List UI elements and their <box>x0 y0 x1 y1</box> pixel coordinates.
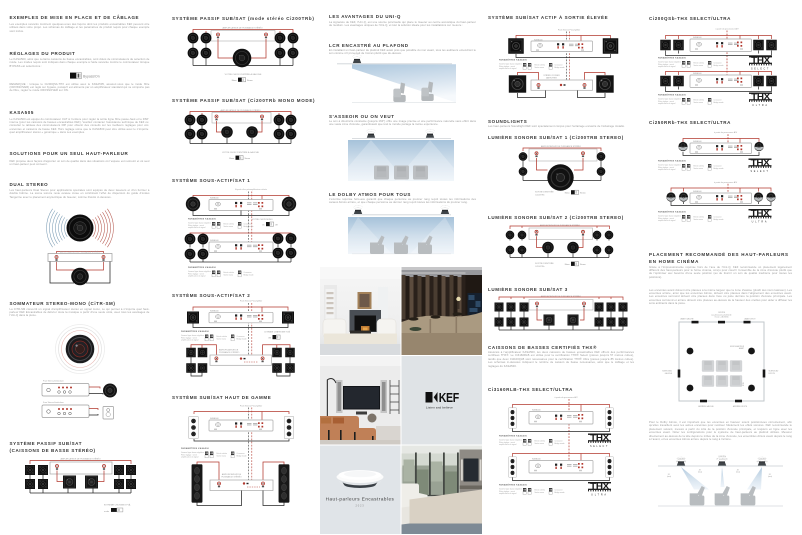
svg-text:à partir du processeur A/V: à partir du processeur A/V <box>714 131 738 134</box>
svg-text:À partir d'un préamplificateur: À partir d'un préamplificateur stéréo <box>235 188 268 191</box>
svg-text:20°: 20° <box>769 474 772 476</box>
svg-text:(max): (max) <box>736 472 741 474</box>
svg-text:Mono: Mono <box>565 264 570 266</box>
svg-text:VOTRE CHOIX D'ENTRÉE À GAUCHE: VOTRE CHOIX D'ENTRÉE À GAUCHE <box>225 73 262 76</box>
svg-text:l'écran + AU BUS): l'écran + AU BUS) <box>715 316 729 319</box>
svg-text:(max): (max) <box>698 472 703 474</box>
svg-text:KASA500: KASA500 <box>210 417 220 420</box>
svg-text:Ci200TRb: Ci200TRb <box>535 266 545 268</box>
svg-text:45°: 45° <box>737 470 740 472</box>
svg-text:ARRIÈRE GAUCHE: ARRIÈRE GAUCHE <box>698 405 714 408</box>
svg-text:ARRIÈRE DROITE: ARRIÈRE DROITE <box>733 405 748 408</box>
svg-text:Mono: Mono <box>229 158 234 160</box>
svg-text:mode: mode <box>104 511 110 513</box>
svg-text:20°: 20° <box>668 474 671 476</box>
svg-text:Från Stereo-förstärkare: Från Stereo-förstärkare <box>43 380 65 383</box>
svg-text:Från Stereo-förstärkare: Från Stereo-förstärkare <box>43 401 65 404</box>
svg-text:Stereo: Stereo <box>245 157 251 160</box>
svg-text:SELECT: SELECT <box>751 67 770 70</box>
svg-text:ULTRA: ULTRA <box>752 220 769 223</box>
svg-text:à partir du processeur A/V: à partir du processeur A/V <box>714 181 738 184</box>
svg-text:45°: 45° <box>699 470 702 472</box>
svg-text:On: On <box>262 224 265 226</box>
svg-text:AMPLIFICATEUR DE PUISSANCE STÉ: AMPLIFICATEUR DE PUISSANCE STÉRÉO <box>541 295 582 298</box>
svg-text:SELECT: SELECT <box>751 170 770 173</box>
svg-text:Listen and believe: Listen and believe <box>426 405 453 409</box>
svg-text:(7' au-dessus): (7' au-dessus) <box>717 459 728 461</box>
svg-text:Ci200TRb: Ci200TRb <box>535 195 545 197</box>
svg-text:AMPLIFICATEUR DE PUISSANCE STÉ: AMPLIFICATEUR DE PUISSANCE STÉRÉO <box>540 224 581 227</box>
svg-text:Bypass/On: Bypass/On <box>83 74 100 78</box>
svg-text:à partir du processeur A/V: à partir du processeur A/V <box>554 396 578 399</box>
svg-text:ULTRA: ULTRA <box>591 493 608 496</box>
svg-text:PUISSANCE STÉRÉO: PUISSANCE STÉRÉO <box>221 476 242 479</box>
svg-text:CI/TRÄNE CHATEIGNE TVÅ: CI/TRÄNE CHATEIGNE TVÅ <box>264 331 290 334</box>
svg-text:GAUCHE: GAUCHE <box>665 372 673 375</box>
svg-text:AMPLIFICATEUR DE PUISSANCE STÉ: AMPLIFICATEUR DE PUISSANCE STÉRÉO <box>60 457 101 460</box>
svg-text:SORTIE D'ENTRÉE: SORTIE D'ENTRÉE <box>535 262 554 265</box>
svg-text:Mono: Mono <box>232 80 237 82</box>
svg-text:Haut-parleurs Encastrables: Haut-parleurs Encastrables <box>326 497 395 502</box>
svg-text:Stereo: Stereo <box>580 192 586 195</box>
svg-text:SORTIE D'ENTRÉE: SORTIE D'ENTRÉE <box>535 191 554 194</box>
svg-text:AVANT DROIT: AVANT DROIT <box>744 317 755 320</box>
svg-text:From Stereo Preamplifier: From Stereo Preamplifier <box>558 29 581 32</box>
svg-text:ULTRA: ULTRA <box>752 104 769 107</box>
svg-text:VOTRE CHOIX D'ENTRÉE À GAUCHE: VOTRE CHOIX D'ENTRÉE À GAUCHE <box>222 151 259 154</box>
svg-text:2023: 2023 <box>356 504 365 508</box>
svg-text:à partir du processeur A/V: à partir du processeur A/V <box>715 28 739 31</box>
svg-text:EXTREME CROSSING TVÅ: EXTREME CROSSING TVÅ <box>104 504 131 507</box>
svg-text:KEF: KEF <box>439 391 459 405</box>
svg-text:Stereo: Stereo <box>580 263 586 266</box>
svg-text:Stereo: Stereo <box>247 79 253 82</box>
svg-text:Mono: Mono <box>565 193 570 195</box>
svg-text:ON: ON <box>268 337 271 339</box>
svg-text:PUISSANCE STÉRÉO: PUISSANCE STÉRÉO <box>219 351 240 354</box>
svg-text:DROITE: DROITE <box>769 373 776 375</box>
svg-text:SELECT: SELECT <box>590 445 609 448</box>
svg-text:AVANT GAUCHE: AVANT GAUCHE <box>680 317 694 320</box>
svg-text:(max): (max) <box>667 476 672 478</box>
svg-text:From Stereo Preamplifier: From Stereo Preamplifier <box>240 300 263 303</box>
svg-text:Off: Off <box>275 224 278 226</box>
svg-text:VOTRE CHOIX MONO: VOTRE CHOIX MONO <box>252 219 273 221</box>
svg-text:(max): (max) <box>768 476 773 478</box>
svg-text:AMPLIFIER: AMPLIFIER <box>546 77 557 80</box>
svg-text:From Stereo Preamplifier: From Stereo Preamplifier <box>240 404 263 407</box>
